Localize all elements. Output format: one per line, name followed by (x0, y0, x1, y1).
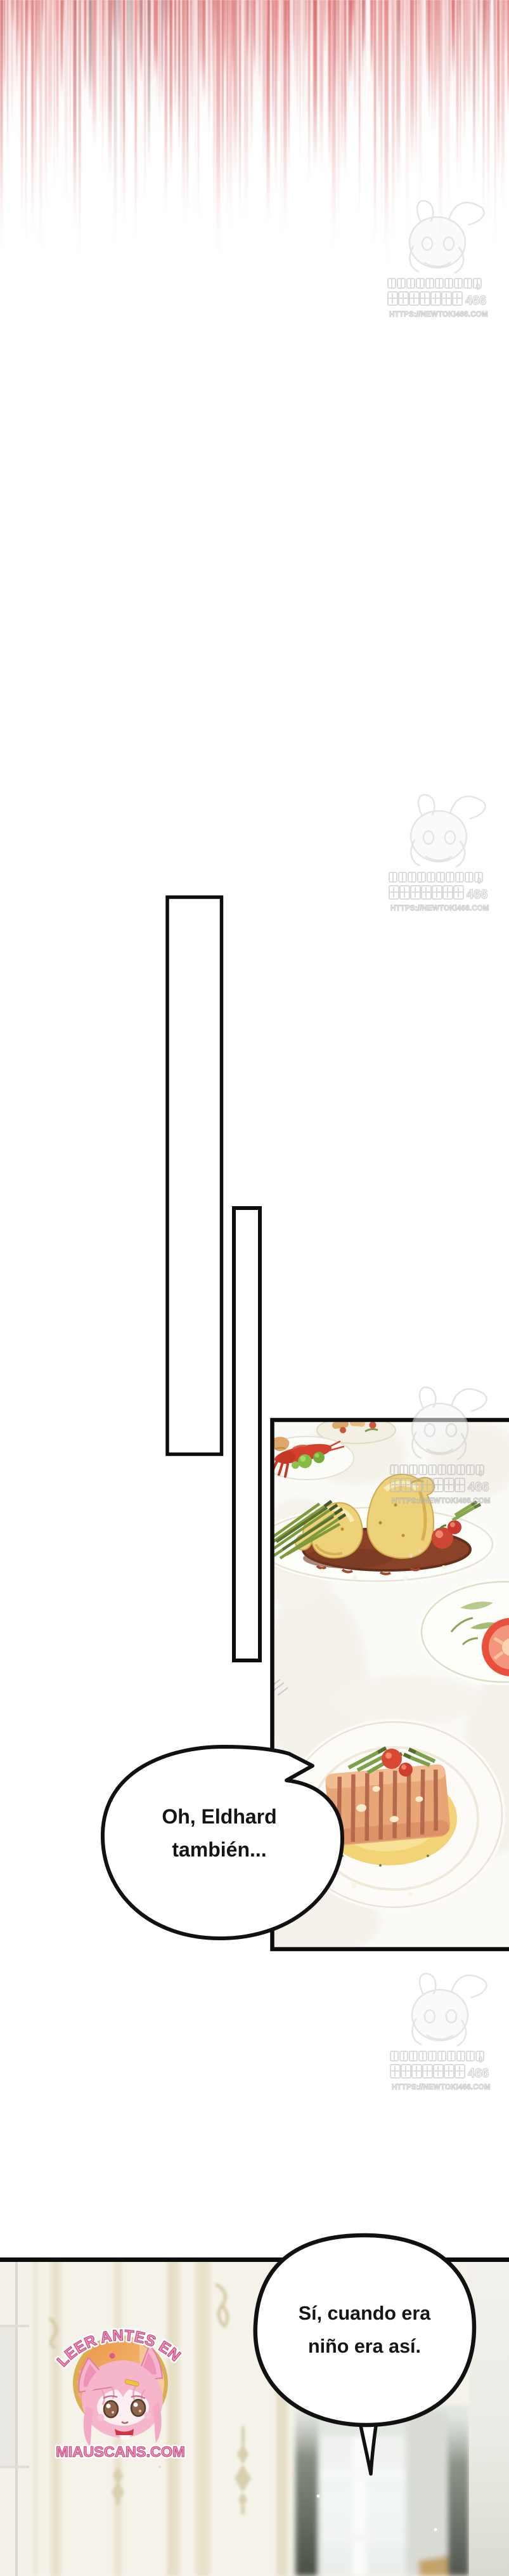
svg-text:Sí, cuando era: Sí, cuando era (299, 2303, 432, 2324)
svg-text:también...: también... (172, 1838, 266, 1861)
svg-text:niño era así.: niño era así. (308, 2336, 421, 2357)
svg-text:Oh, Eldhard: Oh, Eldhard (162, 1805, 276, 1828)
svg-text:MIAUSCANS.COM: MIAUSCANS.COM (56, 2443, 185, 2460)
